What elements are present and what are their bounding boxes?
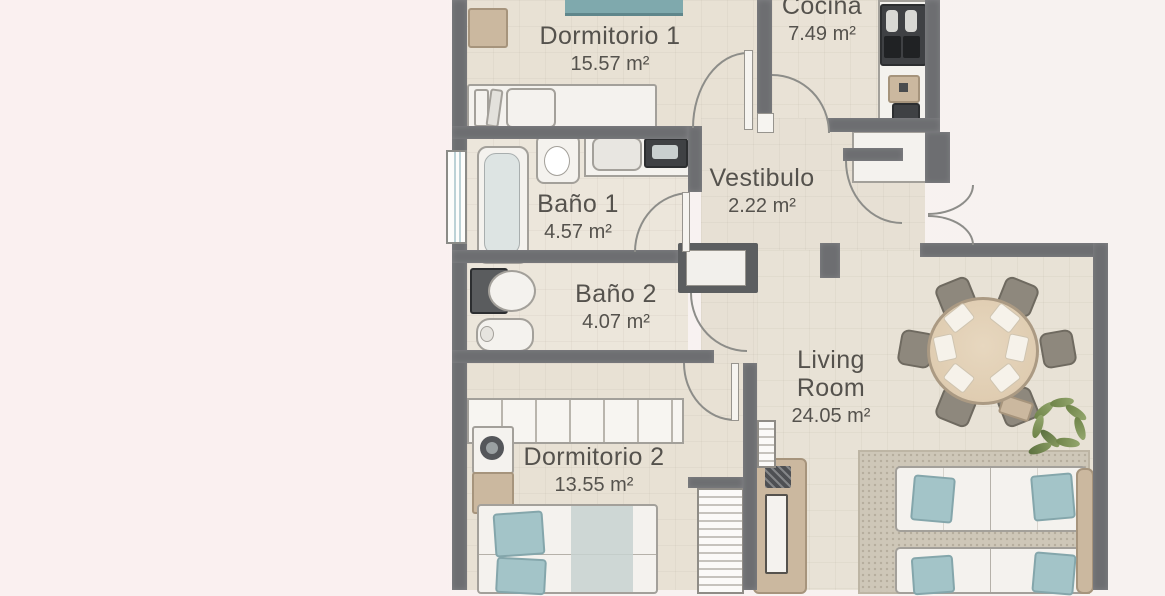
sink-bowl: [884, 36, 901, 58]
floor-plan: Dormitorio 1 15.57 m² Cocina 7.49 m² Ves…: [0, 0, 1165, 590]
door-leaf-bano-1: [682, 192, 690, 252]
tv-decor: [765, 466, 791, 488]
bed-runner: [571, 506, 633, 592]
room-area: 15.57 m²: [540, 53, 681, 76]
room-name: Vestibulo: [709, 164, 814, 192]
kitchen-hob: [888, 75, 920, 103]
wall-bano1-right: [688, 126, 702, 192]
bathtub-basin: [484, 153, 520, 255]
sink-basin: [905, 10, 917, 32]
toilet-tank: [480, 326, 494, 342]
washing-machine: [472, 426, 514, 474]
bathtub: [477, 146, 529, 264]
kitchen-sink: [880, 4, 927, 66]
toilet-bowl: [544, 146, 570, 176]
wall-left-exterior: [452, 0, 467, 590]
wall-cocina-right: [925, 0, 940, 135]
room-area: 13.55 m²: [524, 474, 665, 497]
door-leaf-dormitorio-1: [744, 50, 753, 130]
hall-cabinet-door: [686, 250, 746, 286]
plant: [1022, 392, 1094, 462]
pillow: [1030, 472, 1076, 521]
nightstand: [468, 8, 508, 48]
toilet-2: [476, 318, 534, 352]
sink-basin: [886, 10, 898, 32]
wall-living-stub: [820, 243, 840, 278]
room-name: Baño 2: [575, 280, 657, 308]
room-label-bano-1: Baño 1 4.57 m²: [537, 190, 619, 244]
room-area: 2.22 m²: [709, 195, 814, 218]
desk-chair: [506, 88, 556, 128]
plant-leaf: [1027, 440, 1053, 457]
sink-bowl: [903, 36, 920, 58]
tv-console: [753, 458, 807, 594]
room-name: Living Room: [779, 346, 883, 402]
dining-chair: [1038, 328, 1078, 369]
room-label-dormitorio-1: Dormitorio 1 15.57 m²: [540, 22, 681, 76]
side-table: [1076, 468, 1094, 594]
wall-entry-upper: [925, 132, 950, 183]
room-area: 4.57 m²: [537, 221, 619, 244]
room-name: Cocina: [782, 0, 862, 20]
radiator-small: [757, 420, 776, 468]
door-leaf-dormitorio-2: [731, 363, 739, 421]
room-area: 4.07 m²: [575, 311, 657, 334]
wall-dorm2-living: [743, 363, 757, 590]
bed-1-foot: [565, 0, 683, 16]
room-name: Dormitorio 1: [540, 22, 681, 50]
vanity-mirror: [644, 138, 688, 168]
sofa-cushion-line: [990, 468, 991, 530]
room-label-cocina: Cocina 7.49 m²: [782, 0, 862, 46]
wall-dorm1-cocina: [757, 0, 772, 115]
pillow: [493, 510, 546, 557]
toilet-1: [536, 134, 580, 184]
room-area: 7.49 m²: [782, 23, 862, 46]
mirror-glass: [652, 145, 678, 159]
pillow: [1031, 551, 1076, 596]
room-label-dormitorio-2: Dormitorio 2 13.55 m²: [524, 443, 665, 497]
wall-stub: [688, 477, 743, 488]
wall-bano2-dorm2: [452, 350, 714, 363]
sofa-cushion-line: [990, 549, 991, 592]
room-area: 24.05 m²: [779, 405, 883, 428]
door-arc-bano-2: [690, 293, 747, 352]
radiator: [697, 488, 744, 594]
wall-living-right: [1093, 243, 1108, 590]
vanity-sink-2: [488, 270, 536, 312]
entry-door-swing: [928, 215, 974, 245]
tv-screen: [765, 494, 788, 574]
pillow: [911, 555, 956, 596]
room-label-bano-2: Baño 2 4.07 m²: [575, 280, 657, 334]
wall-living-top: [920, 243, 1108, 257]
plant-leaf: [1055, 436, 1080, 448]
hall-cabinet: [678, 243, 758, 293]
entry-door-swing: [928, 185, 974, 215]
wall-dorm1-bano1: [452, 126, 688, 139]
pillow: [910, 474, 956, 523]
hob-knob: [899, 83, 908, 92]
vanity-sink-1: [592, 137, 642, 171]
washer-drum-inner: [486, 442, 498, 454]
wall-vestibulo-stub: [843, 148, 903, 161]
room-name: Baño 1: [537, 190, 619, 218]
pillow: [495, 557, 547, 596]
wall-cocina-bottom: [828, 118, 940, 132]
room-label-living-room: Living Room 24.05 m²: [779, 346, 883, 428]
room-name: Dormitorio 2: [524, 443, 665, 471]
room-label-vestibulo: Vestibulo 2.22 m²: [709, 164, 814, 218]
window: [446, 150, 467, 244]
